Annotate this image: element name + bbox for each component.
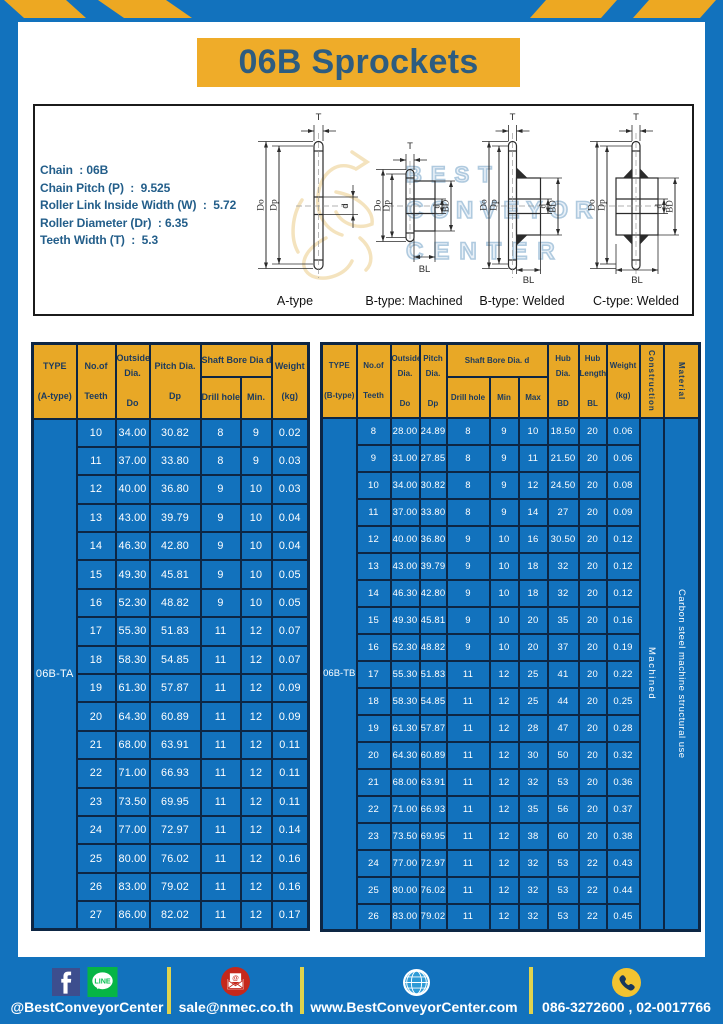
- svg-text:d: d: [538, 204, 548, 209]
- svg-text:T: T: [510, 112, 516, 123]
- svg-text:B-type: Welded: B-type: Welded: [479, 294, 564, 308]
- svg-text:Dp: Dp: [598, 199, 608, 211]
- svg-text:B-type: Machined: B-type: Machined: [365, 294, 462, 308]
- svg-text:BD: BD: [441, 199, 451, 212]
- svg-text:T: T: [407, 141, 413, 152]
- svg-text:BL: BL: [523, 275, 535, 286]
- svg-text:BEST: BEST: [406, 162, 501, 187]
- svg-text:Dp: Dp: [270, 199, 280, 211]
- svg-text:T: T: [316, 112, 322, 123]
- svg-text:BD: BD: [548, 200, 558, 213]
- svg-text:A-type: A-type: [277, 294, 313, 308]
- svg-text:@: @: [232, 975, 239, 982]
- svg-text:d: d: [340, 203, 351, 208]
- svg-text:BD: BD: [665, 200, 675, 213]
- svg-text:BL: BL: [419, 264, 431, 275]
- svg-text:BL: BL: [631, 275, 643, 286]
- svg-text:LINE: LINE: [94, 977, 111, 986]
- svg-text:Dp: Dp: [383, 200, 393, 212]
- svg-text:d: d: [654, 204, 664, 209]
- svg-text:Do: Do: [588, 199, 598, 211]
- svg-text:C-type: Welded: C-type: Welded: [593, 294, 679, 308]
- svg-text:Dp: Dp: [490, 199, 500, 211]
- svg-text:T: T: [633, 112, 639, 123]
- svg-text:Do: Do: [257, 199, 267, 211]
- svg-text:Do: Do: [480, 199, 490, 211]
